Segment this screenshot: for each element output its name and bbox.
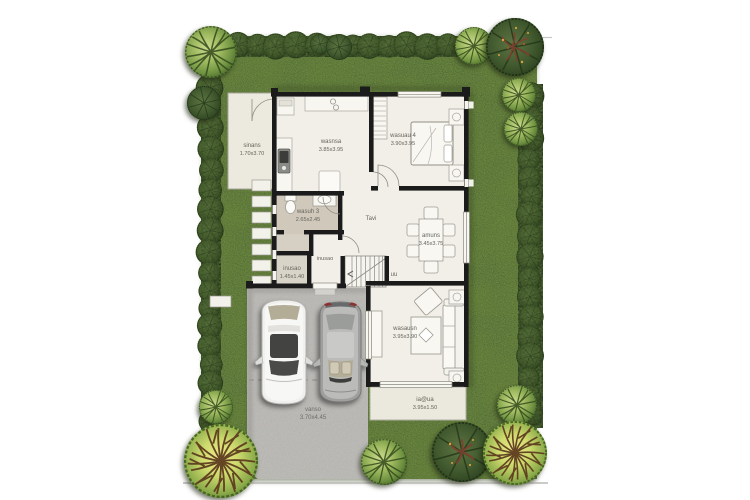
svg-text:3.45x3.75: 3.45x3.75 (419, 241, 444, 247)
svg-text:3.95x1.50: 3.95x1.50 (413, 405, 438, 411)
svg-text:uu: uu (391, 272, 398, 278)
svg-text:1.70x3.70: 1.70x3.70 (240, 151, 265, 157)
svg-text:3.90x3.95: 3.90x3.95 (391, 141, 416, 147)
svg-text:ia@ua: ia@ua (416, 397, 434, 403)
svg-text:3.70x4.45: 3.70x4.45 (300, 415, 327, 421)
svg-text:sinans: sinans (243, 143, 260, 149)
svg-text:3.85x3.95: 3.85x3.95 (319, 147, 344, 153)
svg-text:vanso: vanso (305, 407, 322, 413)
svg-text:inusao: inusao (317, 256, 333, 262)
svg-text:wasnsa: wasnsa (320, 139, 342, 145)
svg-text:Tavi: Tavi (366, 216, 377, 222)
svg-text:inusao: inusao (283, 266, 301, 272)
svg-text:wasuh 3: wasuh 3 (296, 209, 320, 215)
svg-text:2.65x2.45: 2.65x2.45 (296, 217, 321, 223)
svg-text:wasuau 4: wasuau 4 (389, 133, 416, 139)
svg-text:3.95x3.90: 3.95x3.90 (393, 334, 418, 340)
svg-text:wasausn: wasausn (392, 326, 417, 332)
svg-text:1.45x1.40: 1.45x1.40 (280, 274, 305, 280)
svg-text:amuns: amuns (422, 233, 440, 239)
